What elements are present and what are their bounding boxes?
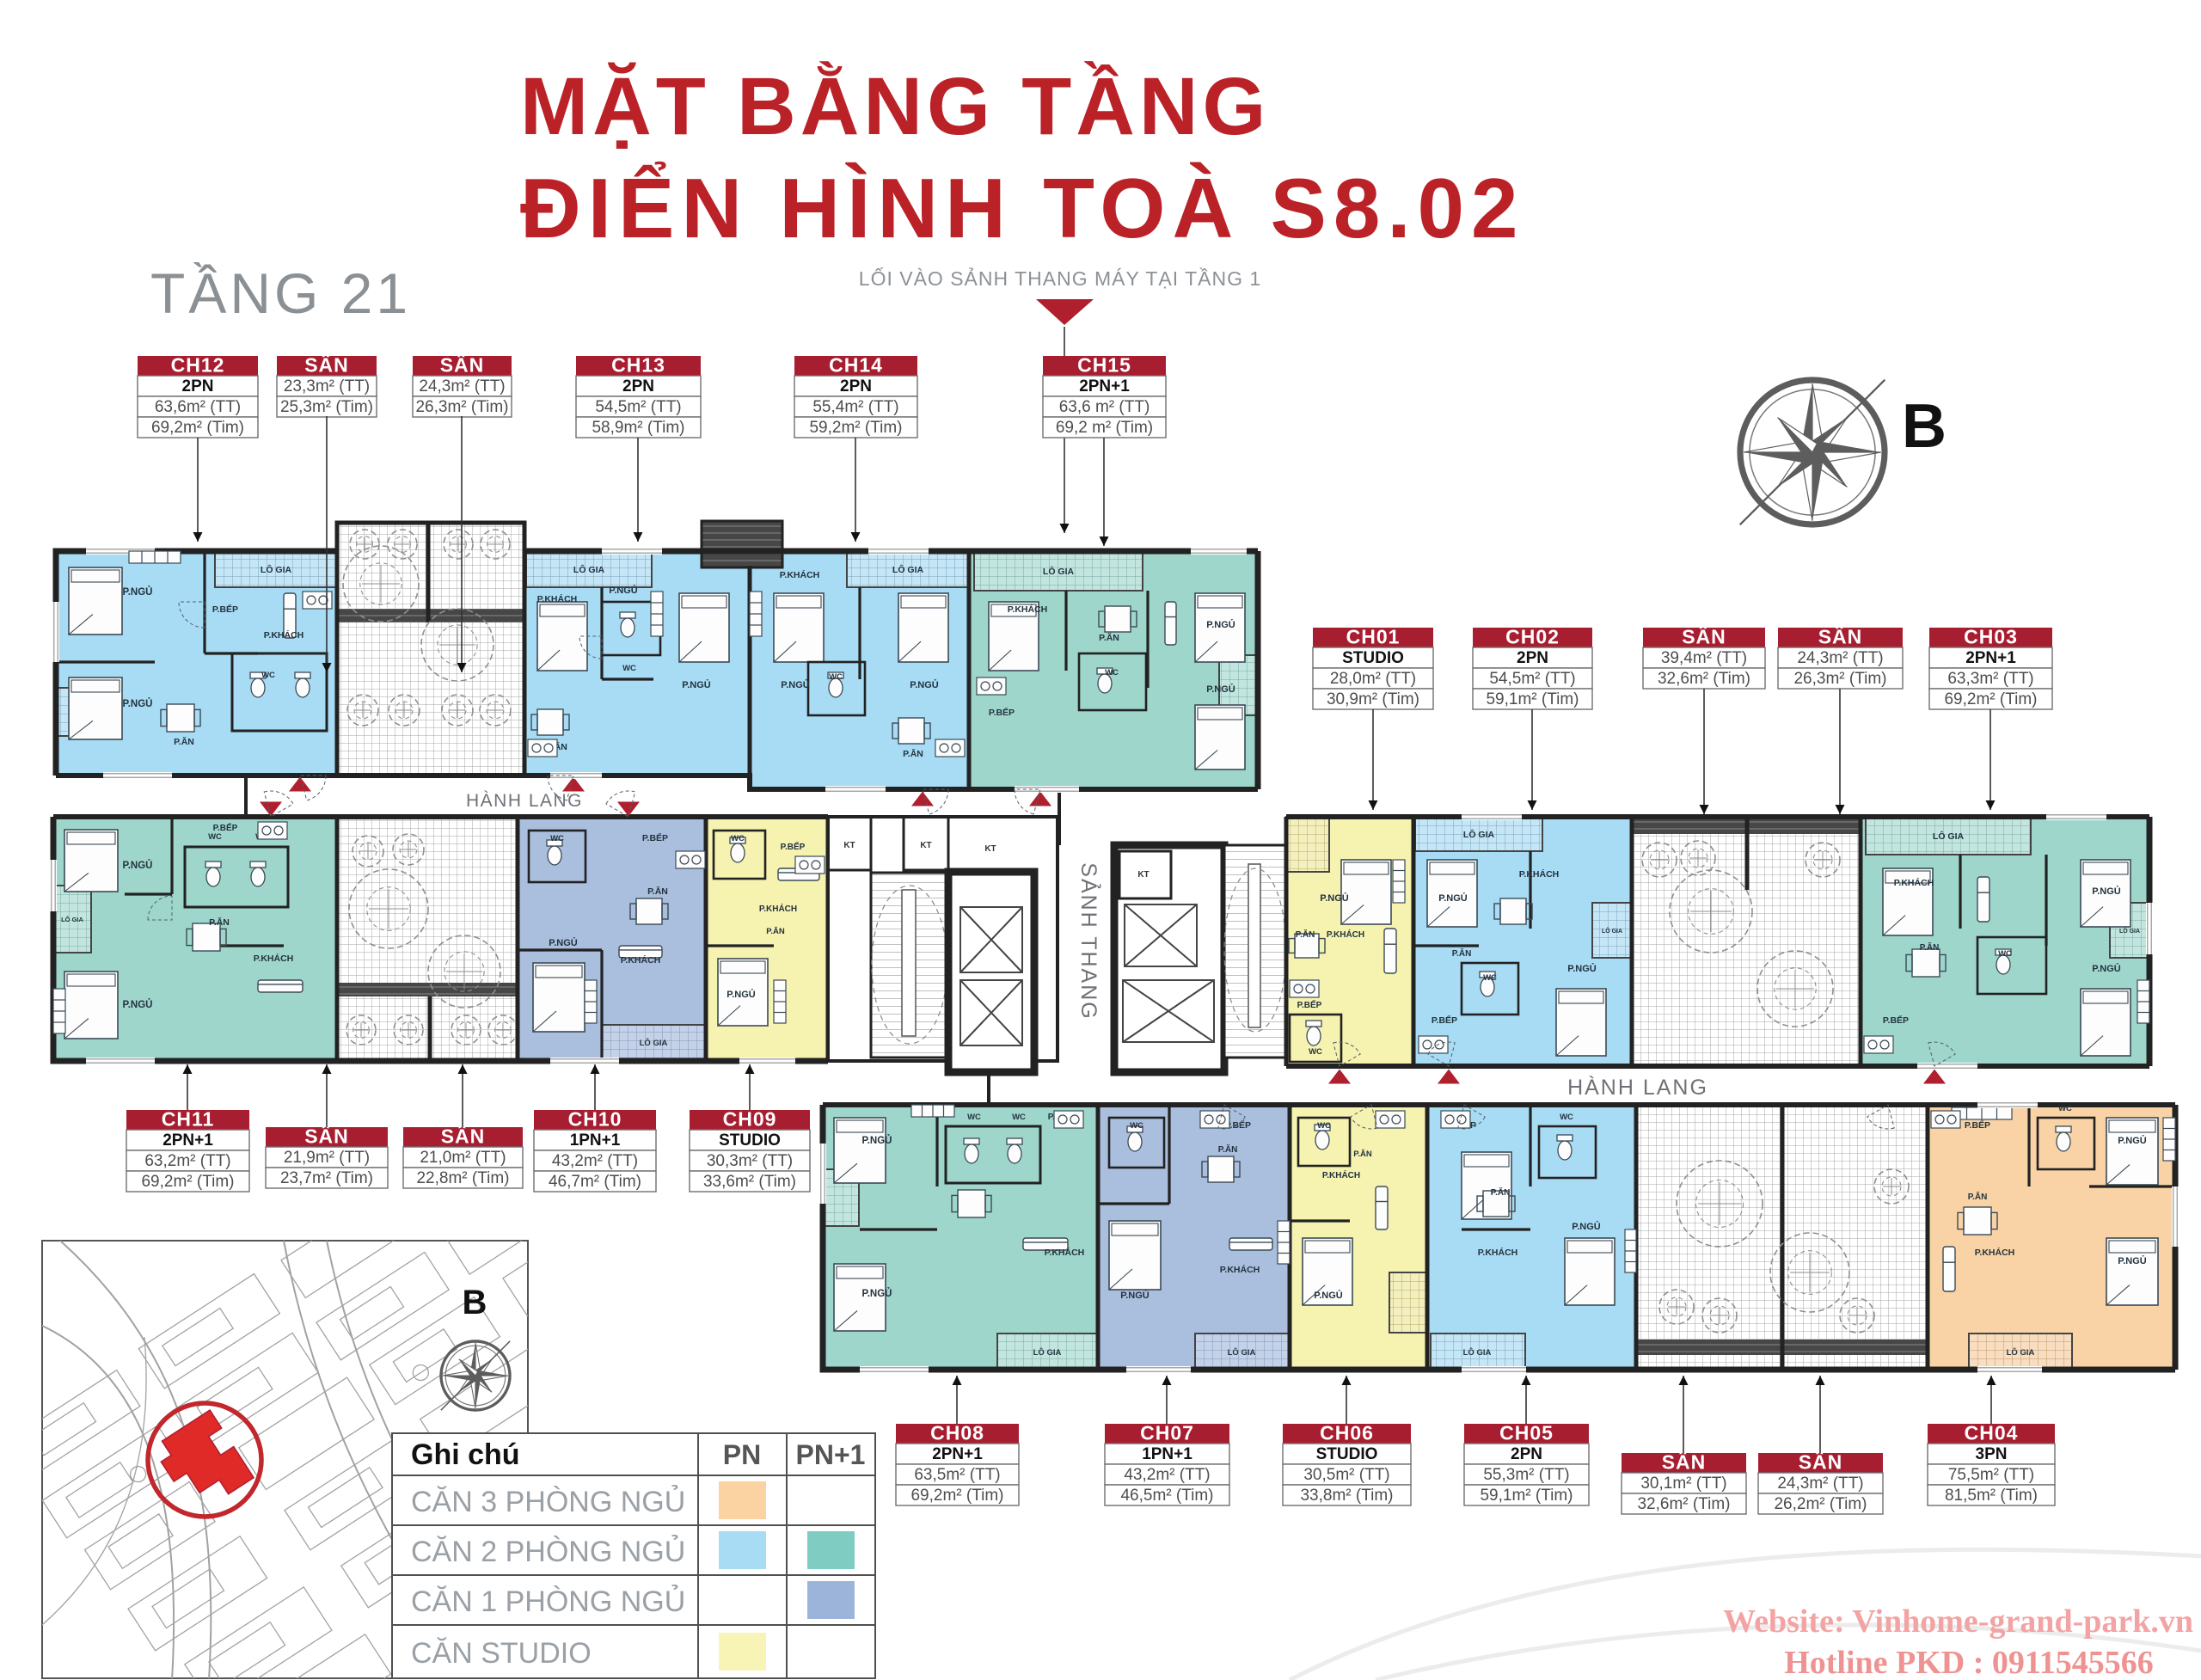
svg-text:LÔ GIA: LÔ GIA: [61, 916, 83, 923]
svg-text:Ghi chú: Ghi chú: [411, 1438, 520, 1471]
svg-text:P.ĂN: P.ĂN: [1218, 1144, 1238, 1155]
svg-text:P.KHÁCH: P.KHÁCH: [1327, 929, 1364, 940]
svg-text:26,3m² (Tim): 26,3m² (Tim): [415, 398, 508, 416]
svg-text:21,9m² (TT): 21,9m² (TT): [284, 1149, 370, 1167]
svg-text:P.NGỦ: P.NGỦ: [781, 679, 809, 690]
svg-text:P.BẾP: P.BẾP: [1965, 1119, 1990, 1131]
svg-text:P.ĂN: P.ĂN: [209, 917, 230, 928]
svg-text:22,8m² (Tim): 22,8m² (Tim): [416, 1169, 509, 1187]
svg-text:2PN: 2PN: [622, 377, 654, 395]
svg-text:P.KHÁCH: P.KHÁCH: [254, 953, 293, 964]
svg-text:2PN: 2PN: [1517, 649, 1548, 667]
svg-text:WC: WC: [1560, 1113, 1573, 1122]
svg-text:3PN: 3PN: [1976, 1445, 2008, 1463]
svg-text:P.NGỦ: P.NGỦ: [2092, 963, 2120, 974]
svg-text:23,3m² (TT): 23,3m² (TT): [284, 377, 370, 395]
svg-text:63,2m² (TT): 63,2m² (TT): [144, 1152, 230, 1170]
svg-text:69,2m² (Tim): 69,2m² (Tim): [141, 1173, 234, 1191]
svg-text:25,3m² (Tim): 25,3m² (Tim): [280, 398, 373, 416]
svg-text:WC: WC: [622, 664, 636, 673]
svg-text:LÔ GIA: LÔ GIA: [1033, 1347, 1062, 1358]
svg-text:69,2m² (Tim): 69,2m² (Tim): [151, 419, 244, 437]
svg-text:32,6m² (Tim): 32,6m² (Tim): [1658, 670, 1750, 688]
svg-text:30,1m² (TT): 30,1m² (TT): [1640, 1475, 1726, 1493]
svg-text:46,7m² (Tim): 46,7m² (Tim): [549, 1173, 641, 1191]
svg-text:STUDIO: STUDIO: [719, 1131, 781, 1150]
svg-text:CH06: CH06: [1320, 1422, 1374, 1444]
svg-text:P.NGỦ: P.NGỦ: [910, 679, 938, 690]
svg-text:P.NGỦ: P.NGỦ: [2118, 1135, 2146, 1146]
svg-text:43,2m² (TT): 43,2m² (TT): [552, 1152, 638, 1170]
svg-text:P.BẾP: P.BẾP: [989, 707, 1015, 718]
svg-text:23,7m² (Tim): 23,7m² (Tim): [280, 1169, 373, 1187]
svg-text:CH01: CH01: [1346, 626, 1401, 648]
svg-text:43,2m² (TT): 43,2m² (TT): [1124, 1466, 1210, 1484]
svg-text:2PN: 2PN: [840, 377, 872, 395]
svg-text:LÔ GIA: LÔ GIA: [2007, 1347, 2035, 1358]
svg-text:P.ĂN: P.ĂN: [1452, 947, 1472, 959]
svg-text:46,5m² (Tim): 46,5m² (Tim): [1120, 1487, 1213, 1505]
svg-text:P.ĂN: P.ĂN: [903, 748, 923, 759]
svg-text:LÔ GIA: LÔ GIA: [1933, 831, 1965, 842]
svg-text:P.KHÁCH: P.KHÁCH: [264, 629, 303, 641]
svg-text:32,6m² (Tim): 32,6m² (Tim): [1637, 1495, 1730, 1513]
svg-text:P.NGỦ: P.NGỦ: [1314, 1290, 1342, 1301]
svg-text:P.ĂN: P.ĂN: [1968, 1191, 1988, 1202]
svg-text:LÔ GIA: LÔ GIA: [892, 564, 924, 575]
svg-text:69,2m² (Tim): 69,2m² (Tim): [1944, 690, 2037, 708]
svg-text:P.ĂN: P.ĂN: [1491, 1186, 1511, 1198]
svg-text:CH03: CH03: [1964, 626, 2018, 648]
svg-text:P.BẾP: P.BẾP: [213, 822, 238, 833]
svg-text:LÔ GIA: LÔ GIA: [573, 564, 605, 575]
svg-text:1PN+1: 1PN+1: [570, 1131, 621, 1150]
svg-text:LÔ GIA: LÔ GIA: [261, 564, 292, 575]
svg-text:WC: WC: [550, 834, 564, 843]
svg-text:30,3m² (TT): 30,3m² (TT): [707, 1152, 793, 1170]
svg-text:P.NGỦ: P.NGỦ: [1438, 892, 1467, 904]
svg-text:WC: WC: [1309, 1047, 1322, 1057]
svg-text:LÔ GIA: LÔ GIA: [1463, 1347, 1492, 1358]
svg-text:P.NGỦ: P.NGỦ: [862, 1288, 892, 1299]
svg-text:75,5m² (TT): 75,5m² (TT): [1948, 1466, 2034, 1484]
svg-text:30,9m² (Tim): 30,9m² (Tim): [1327, 690, 1419, 708]
svg-text:CĂN 2 PHÒNG NGỦ: CĂN 2 PHÒNG NGỦ: [411, 1536, 685, 1568]
svg-text:WC: WC: [1105, 668, 1119, 678]
svg-text:39,4m² (TT): 39,4m² (TT): [1661, 649, 1747, 667]
svg-text:CH12: CH12: [171, 354, 225, 377]
svg-text:P.NGỦ: P.NGỦ: [1206, 684, 1235, 695]
svg-text:CH14: CH14: [829, 354, 883, 377]
svg-text:SẢNH THANG: SẢNH THANG: [1076, 862, 1102, 1020]
svg-text:2PN+1: 2PN+1: [1965, 649, 2016, 667]
svg-text:P.KHÁCH: P.KHÁCH: [1478, 1247, 1517, 1258]
svg-text:B: B: [1902, 392, 1947, 461]
svg-text:P.KHÁCH: P.KHÁCH: [1008, 604, 1047, 615]
svg-text:CH02: CH02: [1505, 626, 1560, 648]
svg-text:Hotline PKD : 0911545566: Hotline PKD : 0911545566: [1784, 1645, 2154, 1680]
svg-text:P.KHÁCH: P.KHÁCH: [1045, 1247, 1084, 1258]
svg-text:P.KHÁCH: P.KHÁCH: [537, 593, 577, 604]
svg-text:54,5m² (TT): 54,5m² (TT): [1489, 670, 1575, 688]
svg-text:SÂN: SÂN: [304, 1125, 349, 1148]
svg-text:WC: WC: [1012, 1113, 1026, 1122]
svg-text:P.ĂN: P.ĂN: [1296, 929, 1315, 940]
svg-text:LÔ GIA: LÔ GIA: [2119, 927, 2140, 935]
svg-text:54,5m² (TT): 54,5m² (TT): [595, 398, 681, 416]
svg-text:CH09: CH09: [723, 1108, 777, 1131]
svg-text:WC: WC: [967, 1113, 981, 1122]
svg-text:P.NGỦ: P.NGỦ: [609, 585, 637, 596]
svg-text:WC: WC: [1483, 973, 1497, 983]
svg-text:SÂN: SÂN: [1818, 625, 1863, 648]
svg-text:P.BẾP: P.BẾP: [1883, 1015, 1909, 1026]
svg-text:ĐIỂN HÌNH TOÀ S8.02: ĐIỂN HÌNH TOÀ S8.02: [520, 161, 1525, 255]
svg-text:SÂN: SÂN: [304, 353, 349, 377]
svg-text:WC: WC: [829, 672, 843, 682]
svg-text:P.ĂN: P.ĂN: [1353, 1150, 1372, 1159]
svg-text:P.NGỦ: P.NGỦ: [2092, 886, 2120, 897]
svg-text:P.KHÁCH: P.KHÁCH: [1220, 1264, 1260, 1275]
svg-text:CH10: CH10: [568, 1108, 622, 1131]
svg-text:P.NGỦ: P.NGỦ: [549, 937, 577, 948]
svg-text:2PN: 2PN: [182, 377, 214, 395]
svg-text:CĂN 3 PHÒNG NGỦ: CĂN 3 PHÒNG NGỦ: [411, 1486, 685, 1518]
svg-text:P.KHÁCH: P.KHÁCH: [1322, 1169, 1360, 1180]
svg-text:SÂN: SÂN: [440, 353, 485, 377]
svg-text:P.NGỦ: P.NGỦ: [1572, 1221, 1600, 1232]
svg-text:P.BẾP: P.BẾP: [1297, 999, 1322, 1010]
svg-text:CH13: CH13: [611, 354, 665, 377]
svg-text:59,1m² (Tim): 59,1m² (Tim): [1486, 690, 1579, 708]
svg-text:58,9m² (Tim): 58,9m² (Tim): [592, 419, 684, 437]
svg-text:24,3m² (TT): 24,3m² (TT): [1777, 1475, 1863, 1493]
svg-text:P.KHÁCH: P.KHÁCH: [759, 903, 797, 914]
svg-text:69,2m² (Tim): 69,2m² (Tim): [910, 1487, 1003, 1505]
svg-text:B: B: [463, 1284, 487, 1321]
svg-text:SÂN: SÂN: [1662, 1450, 1707, 1474]
svg-text:KT: KT: [984, 844, 996, 854]
svg-text:24,3m² (TT): 24,3m² (TT): [1797, 649, 1883, 667]
svg-text:P.KHÁCH: P.KHÁCH: [1894, 877, 1934, 888]
svg-text:STUDIO: STUDIO: [1316, 1445, 1378, 1463]
svg-text:P.ĂN: P.ĂN: [174, 736, 194, 747]
svg-text:33,8m² (Tim): 33,8m² (Tim): [1300, 1487, 1393, 1505]
svg-text:33,6m² (Tim): 33,6m² (Tim): [703, 1173, 796, 1191]
svg-text:CH07: CH07: [1140, 1422, 1194, 1444]
svg-text:P.NGỦ: P.NGỦ: [1320, 892, 1348, 904]
svg-text:P.ĂN: P.ĂN: [1099, 632, 1119, 643]
svg-text:2PN+1: 2PN+1: [162, 1131, 213, 1150]
svg-text:P.ĂN: P.ĂN: [647, 886, 668, 897]
svg-text:2PN+1: 2PN+1: [932, 1445, 983, 1463]
svg-text:55,3m² (TT): 55,3m² (TT): [1483, 1466, 1569, 1484]
svg-text:P.NGỦ: P.NGỦ: [123, 698, 153, 709]
svg-text:P.ĂN: P.ĂN: [766, 927, 785, 936]
svg-text:CH04: CH04: [1965, 1422, 2019, 1444]
svg-text:LÔ GIA: LÔ GIA: [640, 1038, 668, 1048]
svg-text:P.KHÁCH: P.KHÁCH: [780, 569, 819, 580]
svg-text:30,5m² (TT): 30,5m² (TT): [1303, 1466, 1389, 1484]
svg-text:21,0m² (TT): 21,0m² (TT): [420, 1149, 506, 1167]
svg-text:HÀNH LANG: HÀNH LANG: [1567, 1075, 1708, 1100]
svg-text:SÂN: SÂN: [1682, 625, 1726, 648]
svg-text:26,2m² (Tim): 26,2m² (Tim): [1774, 1495, 1867, 1513]
svg-text:1PN+1: 1PN+1: [1142, 1445, 1192, 1463]
svg-text:P.BẾP: P.BẾP: [781, 841, 806, 852]
svg-text:59,2m² (Tim): 59,2m² (Tim): [809, 419, 902, 437]
svg-text:CĂN 1 PHÒNG NGỦ: CĂN 1 PHÒNG NGỦ: [411, 1585, 685, 1618]
svg-text:55,4m² (TT): 55,4m² (TT): [812, 398, 898, 416]
svg-text:P.NGỦ: P.NGỦ: [123, 860, 153, 871]
svg-text:63,3m² (TT): 63,3m² (TT): [1947, 670, 2033, 688]
svg-text:69,2 m² (Tim): 69,2 m² (Tim): [1056, 419, 1153, 437]
svg-text:MẶT BẰNG TẦNG: MẶT BẰNG TẦNG: [520, 61, 1270, 152]
svg-text:P.NGỦ: P.NGỦ: [2118, 1255, 2146, 1266]
svg-text:WC: WC: [1998, 949, 2012, 959]
svg-text:P.NGỦ: P.NGỦ: [123, 586, 153, 598]
svg-text:28,0m² (TT): 28,0m² (TT): [1330, 670, 1416, 688]
svg-text:P.KHÁCH: P.KHÁCH: [621, 954, 660, 966]
svg-text:P.NGỦ: P.NGỦ: [123, 999, 153, 1010]
svg-text:KT: KT: [920, 841, 931, 850]
svg-text:LÔ GIA: LÔ GIA: [1463, 829, 1495, 840]
svg-text:LỐI VÀO SẢNH THANG MÁY TẠI TẦN: LỐI VÀO SẢNH THANG MÁY TẠI TẦNG 1: [859, 266, 1261, 290]
svg-text:KT: KT: [843, 841, 855, 850]
svg-text:TẦNG 21: TẦNG 21: [150, 261, 411, 325]
svg-text:2PN: 2PN: [1511, 1445, 1542, 1463]
svg-text:CH15: CH15: [1077, 354, 1131, 377]
svg-text:LÔ GIA: LÔ GIA: [1043, 566, 1075, 577]
svg-text:63,6 m² (TT): 63,6 m² (TT): [1059, 398, 1150, 416]
svg-text:LÔ GIA: LÔ GIA: [1602, 927, 1622, 935]
svg-text:P.NGỦ: P.NGỦ: [727, 989, 755, 1000]
svg-text:63,5m² (TT): 63,5m² (TT): [914, 1466, 1000, 1484]
svg-text:WC: WC: [731, 834, 745, 843]
svg-text:63,6m² (TT): 63,6m² (TT): [155, 398, 241, 416]
svg-text:KT: KT: [1137, 870, 1149, 880]
svg-text:P.BẾP: P.BẾP: [1432, 1015, 1457, 1026]
svg-text:PN: PN: [723, 1439, 761, 1470]
svg-text:P.BẾP: P.BẾP: [212, 604, 238, 615]
svg-text:PN+1: PN+1: [796, 1439, 866, 1470]
svg-text:WC: WC: [1317, 1121, 1331, 1131]
svg-text:HÀNH LANG: HÀNH LANG: [466, 791, 583, 811]
svg-text:WC: WC: [2058, 1104, 2072, 1113]
svg-text:CH08: CH08: [930, 1422, 984, 1444]
svg-text:P.KHÁCH: P.KHÁCH: [1519, 868, 1559, 880]
svg-text:P.NGỦ: P.NGỦ: [1567, 963, 1596, 974]
svg-text:STUDIO: STUDIO: [1342, 649, 1404, 667]
svg-text:LÔ GIA: LÔ GIA: [1228, 1347, 1256, 1358]
svg-text:P.BẾP: P.BẾP: [642, 832, 668, 843]
svg-text:P.KHÁCH: P.KHÁCH: [1975, 1247, 2014, 1258]
svg-text:P.NGỦ: P.NGỦ: [1120, 1290, 1149, 1301]
svg-text:26,3m² (Tim): 26,3m² (Tim): [1793, 670, 1886, 688]
svg-text:WC: WC: [1130, 1121, 1143, 1131]
svg-text:P.NGỦ: P.NGỦ: [682, 679, 710, 690]
svg-text:P.NGỦ: P.NGỦ: [1206, 619, 1235, 630]
svg-text:59,1m² (Tim): 59,1m² (Tim): [1480, 1487, 1573, 1505]
svg-text:WC: WC: [261, 671, 275, 680]
svg-text:P.ĂN: P.ĂN: [1920, 941, 1940, 953]
svg-text:P.NGỦ: P.NGỦ: [862, 1135, 892, 1146]
svg-text:2PN+1: 2PN+1: [1079, 377, 1130, 395]
svg-text:81,5m² (Tim): 81,5m² (Tim): [1945, 1487, 2038, 1505]
svg-text:WC: WC: [208, 832, 222, 842]
svg-text:Website: Vinhome-grand-park.vn: Website: Vinhome-grand-park.vn: [1723, 1603, 2193, 1640]
svg-text:CĂN STUDIO: CĂN STUDIO: [411, 1637, 592, 1670]
svg-text:SÂN: SÂN: [1799, 1450, 1843, 1474]
svg-text:SÂN: SÂN: [441, 1125, 486, 1148]
svg-text:CH11: CH11: [162, 1108, 215, 1131]
svg-text:CH05: CH05: [1499, 1422, 1554, 1444]
svg-text:24,3m² (TT): 24,3m² (TT): [419, 377, 505, 395]
